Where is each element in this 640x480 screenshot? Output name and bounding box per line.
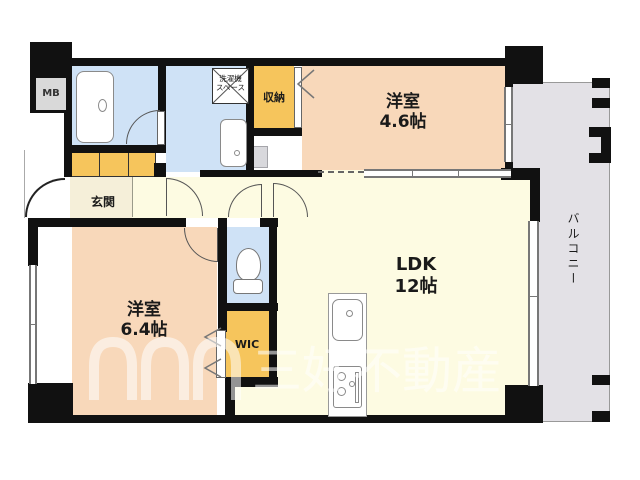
bedroom2-name: 洋室 bbox=[82, 300, 206, 320]
bathtub bbox=[76, 71, 114, 143]
meter-box: MB bbox=[36, 78, 66, 110]
bedroom2-label: 洋室 6.4帖 bbox=[82, 300, 206, 341]
bedroom1-size: 4.6帖 bbox=[340, 112, 466, 132]
bedroom1-name: 洋室 bbox=[340, 92, 466, 112]
floorplan: 洗濯機 スペース MB 三好不動産 収納 洋室 4.6帖 バルコニー 玄関 bbox=[0, 0, 640, 480]
bathtub-drain bbox=[98, 99, 107, 112]
washbasin-faucet bbox=[234, 150, 240, 156]
closet-label: 収納 bbox=[254, 91, 294, 104]
laundry-label-line2: スペース bbox=[213, 83, 248, 92]
laundry-space-box: 洗濯機 スペース bbox=[212, 68, 249, 104]
ldk-label: LDK 12帖 bbox=[353, 254, 479, 297]
meter-box-label: MB bbox=[36, 78, 66, 110]
wic-label: WIC bbox=[227, 338, 267, 351]
ldk-name: LDK bbox=[353, 254, 479, 276]
bedroom2-size: 6.4帖 bbox=[82, 320, 206, 340]
bedroom1-label: 洋室 4.6帖 bbox=[340, 92, 466, 133]
laundry-label: 洗濯機 スペース bbox=[213, 74, 248, 92]
entrance-label: 玄関 bbox=[78, 195, 128, 209]
toilet-tank bbox=[233, 279, 263, 294]
watermark-text: 三好不動産 bbox=[252, 342, 502, 400]
laundry-label-line1: 洗濯機 bbox=[213, 74, 248, 83]
ldk-size: 12帖 bbox=[353, 276, 479, 298]
balcony-label: バルコニー bbox=[558, 194, 580, 304]
toilet-bowl bbox=[236, 248, 261, 281]
kitchen-faucet bbox=[346, 310, 353, 317]
washbasin bbox=[220, 119, 247, 167]
